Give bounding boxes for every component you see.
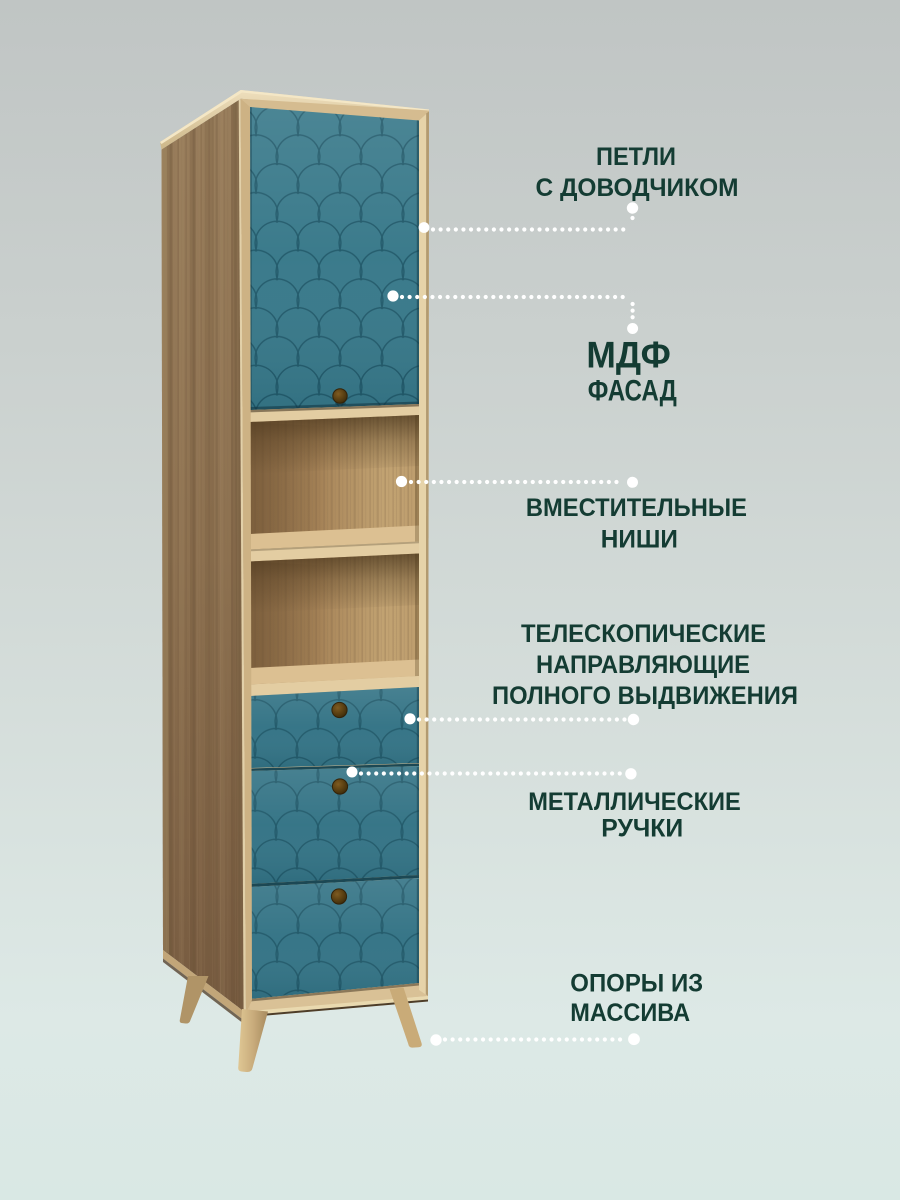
svg-text:ФАСАД: ФАСАД: [588, 375, 677, 408]
svg-text:ПОЛНОГО ВЫДВИЖЕНИЯ: ПОЛНОГО ВЫДВИЖЕНИЯ: [492, 682, 798, 710]
svg-text:ПЕТЛИ: ПЕТЛИ: [596, 143, 676, 171]
svg-text:МЕТАЛЛИЧЕСКИЕ: МЕТАЛЛИЧЕСКИЕ: [528, 788, 741, 816]
svg-text:МДФ: МДФ: [586, 335, 670, 376]
svg-text:ОПОРЫ ИЗ: ОПОРЫ ИЗ: [570, 970, 703, 998]
svg-text:МАССИВА: МАССИВА: [570, 999, 690, 1027]
svg-text:С ДОВОДЧИКОМ: С ДОВОДЧИКОМ: [536, 174, 739, 202]
svg-text:РУЧКИ: РУЧКИ: [601, 815, 683, 843]
svg-text:НИШИ: НИШИ: [601, 526, 678, 554]
svg-text:ВМЕСТИТЕЛЬНЫЕ: ВМЕСТИТЕЛЬНЫЕ: [526, 494, 747, 522]
svg-text:ТЕЛЕСКОПИЧЕСКИЕ: ТЕЛЕСКОПИЧЕСКИЕ: [521, 620, 766, 648]
svg-text:НАПРАВЛЯЮЩИЕ: НАПРАВЛЯЮЩИЕ: [536, 651, 750, 679]
